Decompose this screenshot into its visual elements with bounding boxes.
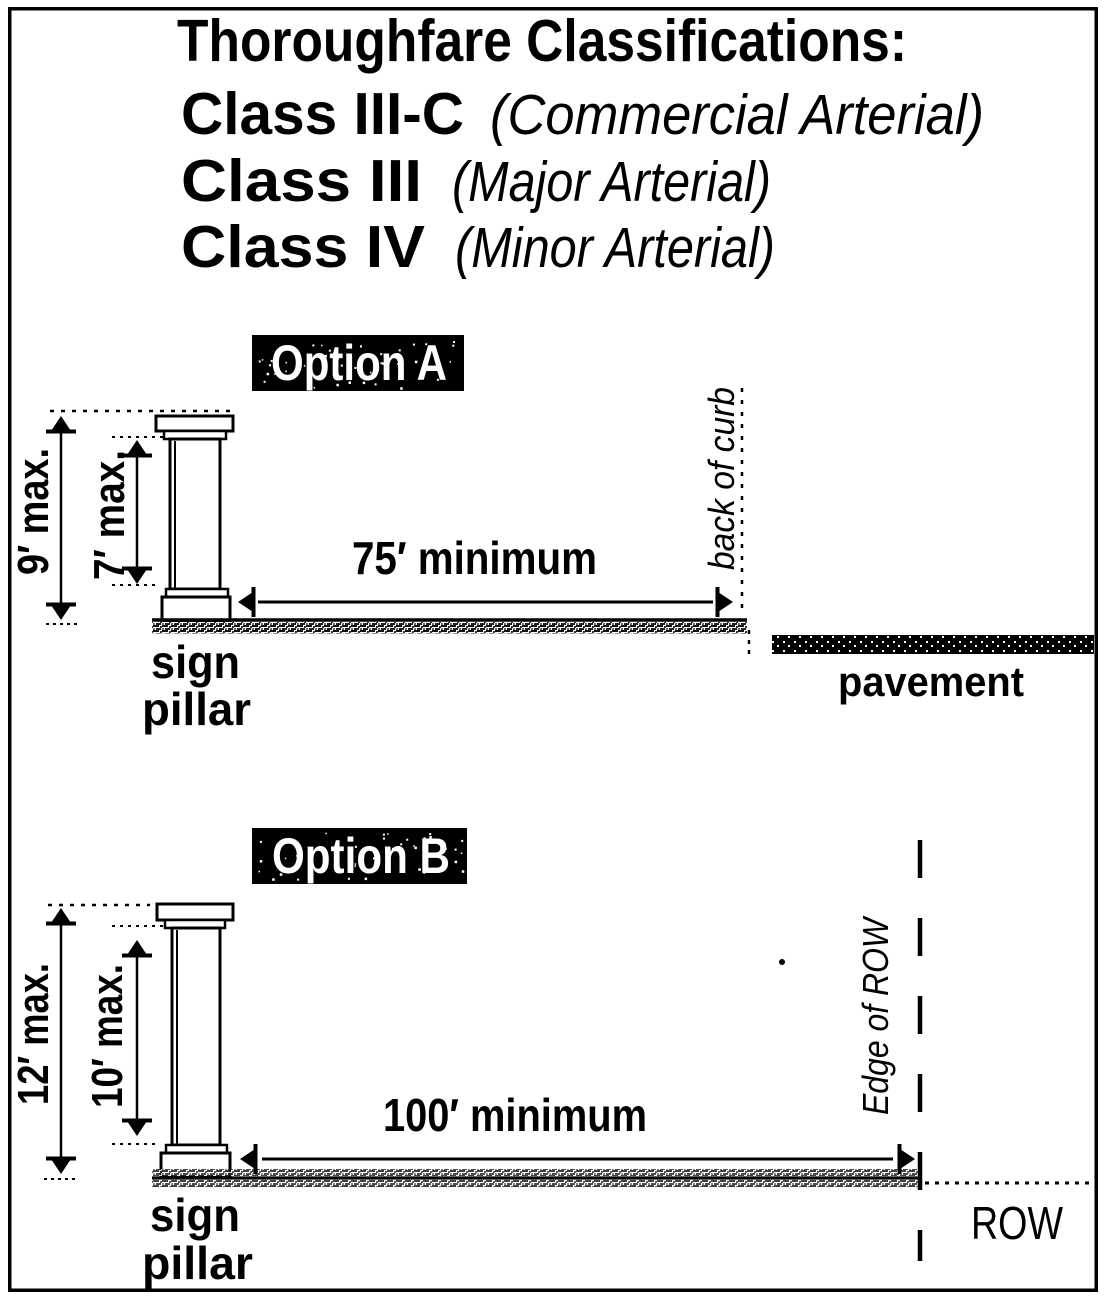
svg-text:7′ max.: 7′ max. bbox=[85, 450, 134, 580]
svg-text:Option A: Option A bbox=[271, 335, 447, 391]
svg-text:12′ max.: 12′ max. bbox=[9, 963, 58, 1105]
svg-text:back of curb: back of curb bbox=[701, 387, 742, 570]
svg-text:10′ max.: 10′ max. bbox=[83, 964, 132, 1108]
svg-text:Class III-C: Class III-C bbox=[181, 81, 464, 147]
svg-text:Class IV: Class IV bbox=[181, 214, 425, 280]
svg-text:Class III: Class III bbox=[181, 148, 422, 214]
svg-text:pillar: pillar bbox=[142, 683, 251, 735]
svg-text:sign: sign bbox=[150, 1189, 240, 1241]
svg-text:ROW: ROW bbox=[971, 1197, 1063, 1249]
svg-text:(Minor Arterial): (Minor Arterial) bbox=[455, 216, 775, 280]
svg-text:pavement: pavement bbox=[838, 658, 1024, 705]
svg-text:pillar: pillar bbox=[142, 1237, 253, 1289]
svg-text:Option B: Option B bbox=[272, 828, 450, 884]
svg-text:(Commercial Arterial): (Commercial Arterial) bbox=[490, 83, 984, 147]
svg-text:(Major Arterial): (Major Arterial) bbox=[452, 150, 771, 214]
svg-text:Thoroughfare Classifications:: Thoroughfare Classifications: bbox=[177, 8, 907, 74]
svg-text:75′ minimum: 75′ minimum bbox=[352, 532, 597, 584]
svg-text:sign: sign bbox=[151, 636, 240, 688]
svg-text:9′ max.: 9′ max. bbox=[9, 448, 58, 575]
svg-text:100′ minimum: 100′ minimum bbox=[383, 1089, 647, 1141]
svg-text:Edge of ROW: Edge of ROW bbox=[855, 915, 896, 1115]
